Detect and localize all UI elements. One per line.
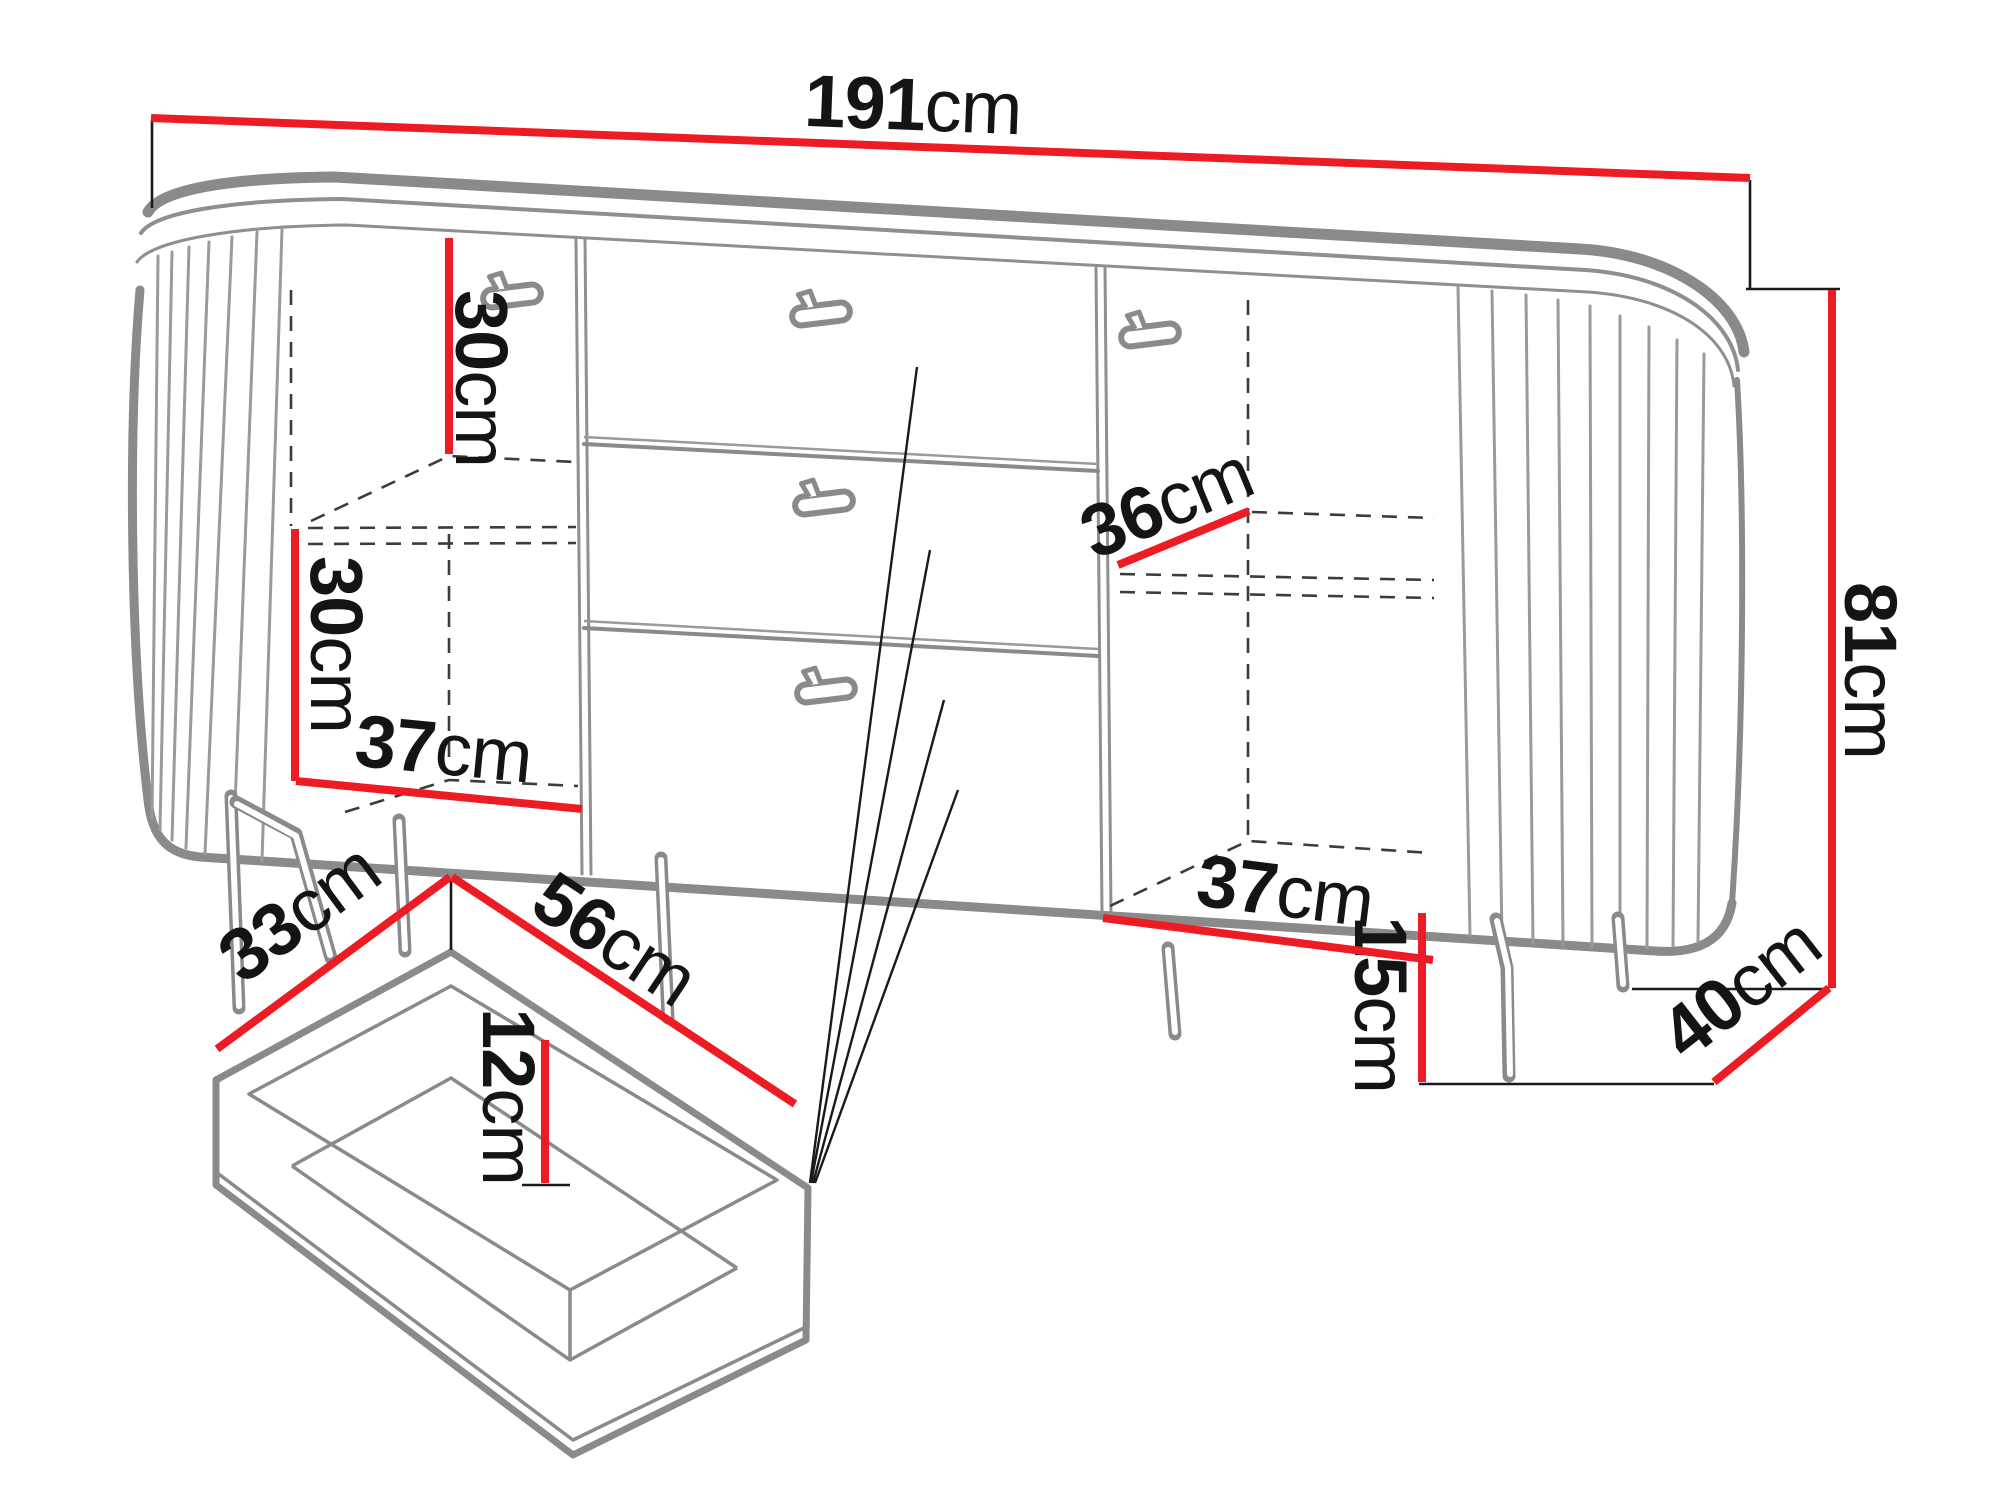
dim-overall-width-label: 191cm bbox=[803, 59, 1023, 150]
drawer-1-handle bbox=[789, 287, 851, 327]
left-fluted-panel bbox=[152, 229, 282, 861]
dim-left-width-label: 37cm bbox=[351, 699, 535, 799]
cabinet-top bbox=[137, 177, 1744, 386]
right-cap-edge bbox=[1732, 380, 1742, 903]
diagram-canvas: 191cm 81cm 40cm 15cm 30cm 30cm 37cm 36cm bbox=[0, 0, 2000, 1500]
dim-leg-height-label: 15cm bbox=[1339, 916, 1422, 1093]
back-left-leg bbox=[399, 820, 405, 951]
dim-overall-width: 191cm bbox=[151, 59, 1750, 290]
dimension-diagram: 191cm 81cm 40cm 15cm 30cm 30cm 37cm 36cm bbox=[0, 0, 2000, 1500]
back-middle-leg bbox=[1168, 948, 1175, 1034]
right-fluted-panel bbox=[1458, 287, 1704, 948]
left-shelf-front-hidden-1 bbox=[308, 527, 576, 528]
right-shelf-front-hidden-2 bbox=[1120, 592, 1434, 598]
dim-drawer-height-label: 12cm bbox=[467, 1008, 550, 1185]
drawer-2-handle bbox=[792, 476, 854, 516]
drawer-divider-1 bbox=[584, 437, 1098, 471]
dim-left-upper-height-label: 30cm bbox=[440, 290, 523, 467]
right-shelf-top-hidden bbox=[1252, 512, 1434, 518]
top-front-rim bbox=[141, 199, 1738, 370]
right-shelf-front-hidden-1 bbox=[1120, 574, 1434, 580]
left-shelf-front-hidden-2 bbox=[308, 543, 576, 544]
drawer-leader-lines bbox=[810, 367, 958, 1183]
dim-overall-depth: 40cm bbox=[1419, 901, 1836, 1084]
dim-left-upper-height: 30cm bbox=[440, 238, 523, 467]
dim-overall-height-label: 81cm bbox=[1829, 582, 1912, 759]
right-compartment-hidden-lines bbox=[1110, 300, 1434, 906]
drawer-divider-2 bbox=[584, 621, 1098, 656]
left-door-gap bbox=[576, 240, 591, 874]
front-right-leg bbox=[1496, 919, 1510, 1076]
drawer-3-handle bbox=[794, 664, 856, 704]
right-door-handle bbox=[1118, 308, 1180, 348]
dim-overall-height: 81cm bbox=[1746, 289, 1912, 988]
right-door-gap bbox=[1096, 268, 1111, 913]
back-right-leg bbox=[1618, 918, 1623, 986]
